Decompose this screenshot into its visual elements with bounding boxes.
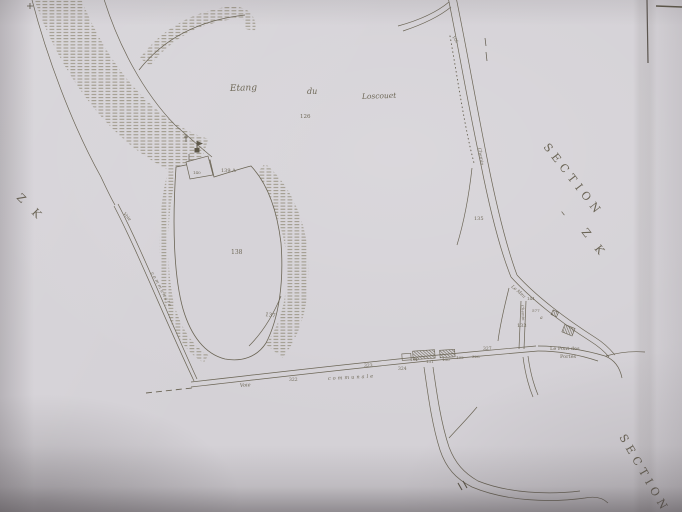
road-bottom-communale-label: communale [328,374,376,382]
parcel-139a-label: 139 A [221,168,236,174]
village-lane-south2 [528,356,538,395]
parcel-328-label: 328 [472,354,480,359]
section-left-zk: Z K [14,191,47,224]
village-lane-south1 [523,357,533,397]
parcel-323-label: 323 [364,363,373,369]
section-right-dash: – [557,207,574,223]
parcel-138-label: 138 [231,249,243,256]
etang-label-2: du [307,87,317,96]
parcel-324-label: 324 [398,366,407,372]
parcel-133-label: 133 [517,323,527,329]
fold-line [647,0,648,63]
cadastral-map-photo: Etang du Loscouet 126 Z K SECTION – Z K … [0,0,682,512]
parcel-144-label: 144 [527,296,535,301]
section-bottom-title: SECTION [616,432,672,512]
hachure-band-hook [145,12,238,62]
parcel-134-label: 134 [410,357,418,362]
road-left-voie-label: Voie [122,211,133,222]
scale-bar-line [656,6,682,7]
parcel-126-label: 126 [300,114,311,120]
survey-marks [27,0,682,490]
etang-label-3: Loscouet [361,91,398,101]
parcel-131-label: 131 [426,359,434,364]
parcel-135-label: 135 [474,216,484,222]
road-right-edge2 [456,0,517,275]
stream-diagonal-edge2 [517,275,615,355]
footpath-dotted [450,36,474,163]
pont-des-portes-label-1: Le Pont des [550,346,580,352]
road-right-chemin-label: Chemin [476,147,485,165]
stream-name-label: Le Meu [509,283,527,299]
parcel-132-label: 132 [456,355,464,360]
parcel-322-label: 322 [289,377,298,383]
parcel-a-label: a [540,316,543,321]
island-parcel-outline [174,160,282,360]
building-hatched-4 [562,324,575,336]
corner-cross-icon [27,3,33,9]
hachure-band-hook-tip [238,12,251,30]
stream-branch [449,407,477,438]
limit-dashed [146,388,192,393]
stream-south-edge2 [433,367,580,493]
parcel-105-label: 105 [451,35,460,44]
pont-des-portes-label-2: Portes [560,354,577,360]
parcel-135-boundary [457,168,472,245]
section-right-zk: Z K [579,226,610,261]
parcel-327-label: 327 [483,346,492,352]
road-bottom-voie-label: Voie [240,382,251,389]
parcel-577-label: 577 [532,308,540,313]
map-drawing: Etang du Loscouet 126 Z K SECTION – Z K … [0,0,682,512]
section-right-title: SECTION [541,141,606,219]
ford-mark [458,481,467,490]
parcel-133-boundary [498,288,509,341]
village-chemin-label: Chemin [520,305,526,321]
road-branch-east [606,352,645,356]
boundary-tick-3 [485,38,487,61]
road-top-branch2 [403,7,451,31]
parcel-130-label: 130 [442,357,450,362]
parcel-140-label: 140 [193,170,201,175]
etang-label-1: Etang [229,83,258,94]
